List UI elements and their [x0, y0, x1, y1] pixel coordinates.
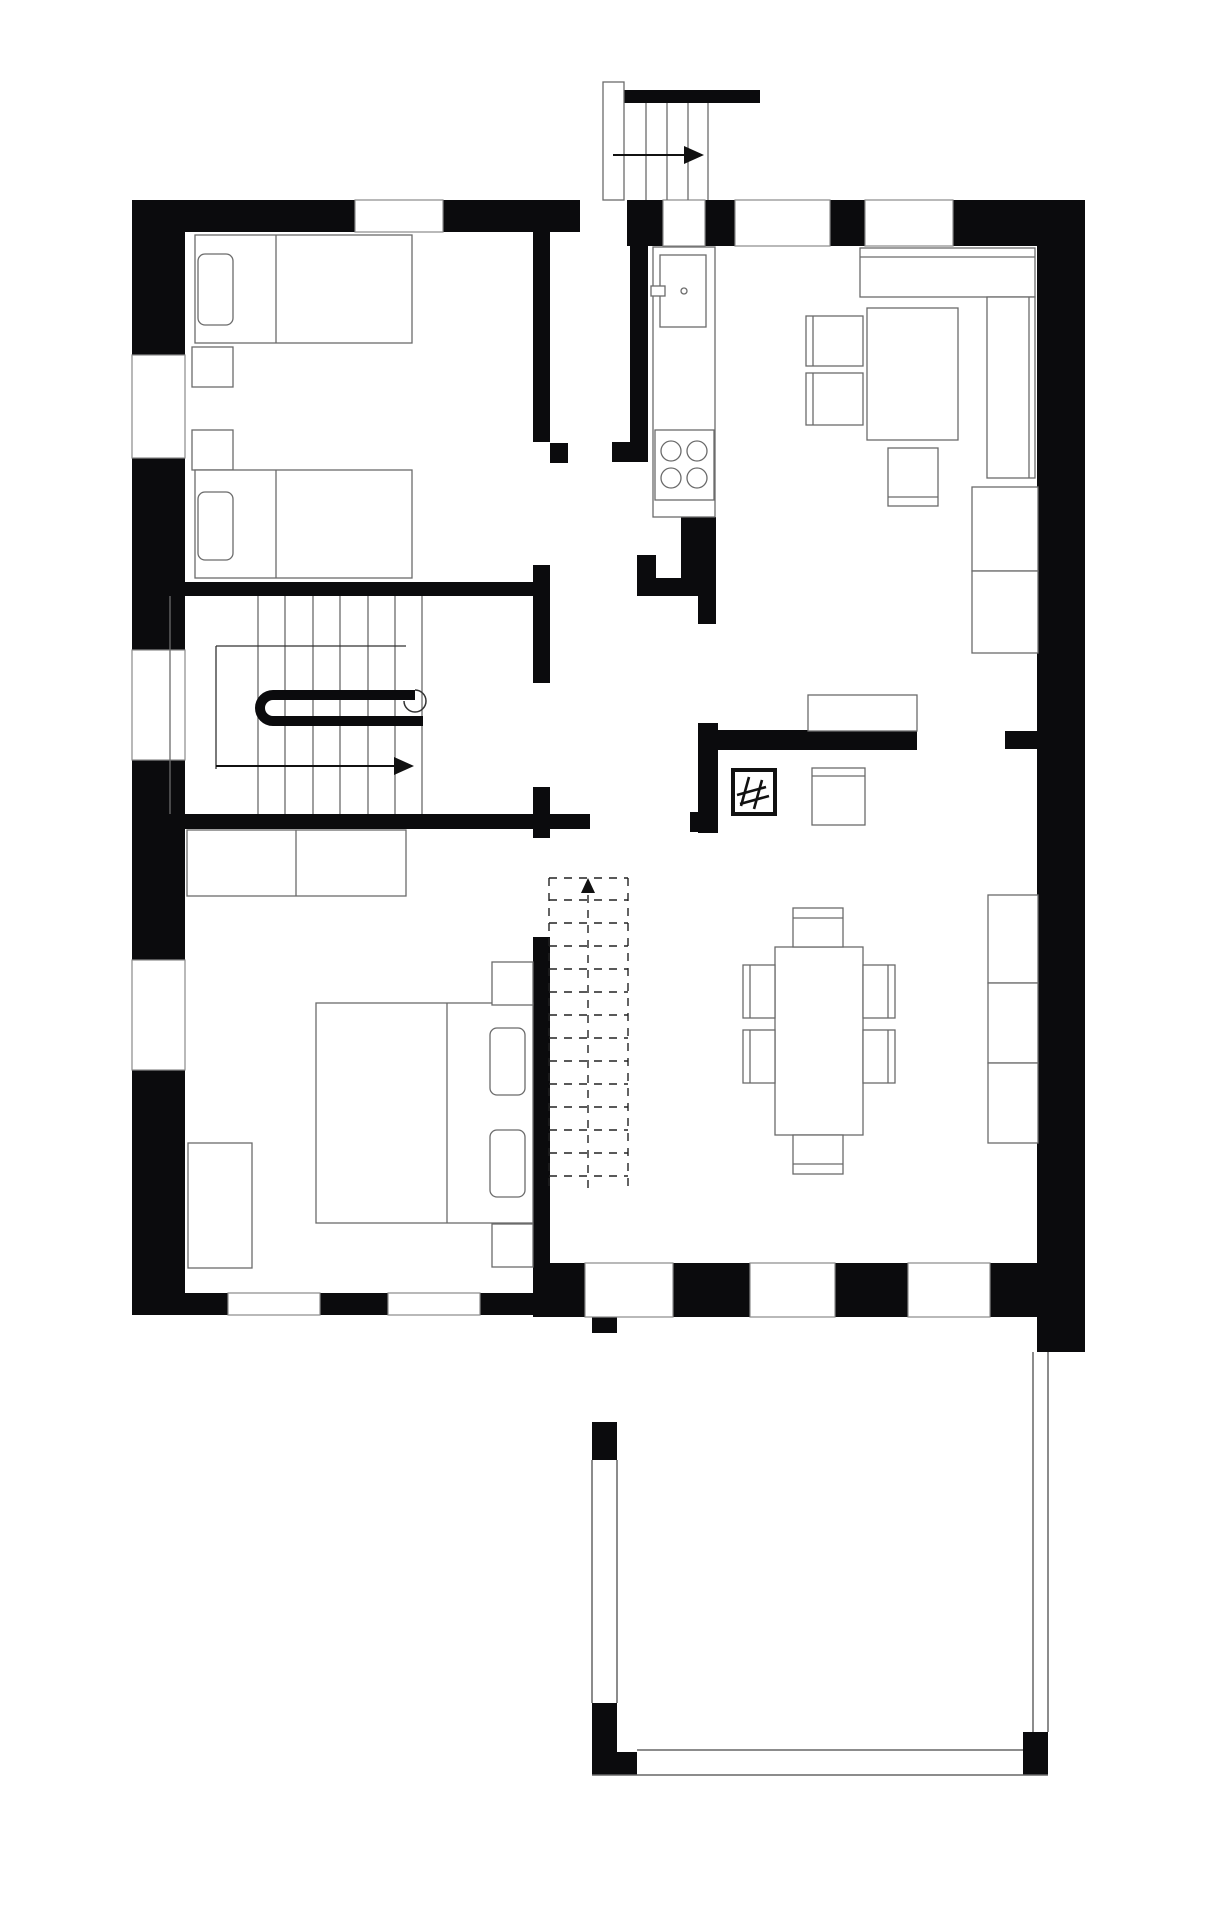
dining-chair-west-2: [743, 1030, 775, 1083]
kitchen-faucet: [651, 286, 665, 296]
terrace-stub-top: [592, 1317, 617, 1333]
hall-wall-left-stub: [550, 443, 568, 463]
southwest-junction: [533, 1266, 585, 1317]
hall-wall-cross: [533, 787, 550, 838]
window-top-4: [865, 200, 953, 246]
cabinet-3: [988, 895, 1038, 983]
hall-wall-right: [630, 232, 648, 442]
kitchen-wall-piece: [637, 555, 656, 578]
core-wall-foot: [690, 812, 718, 832]
burner-3: [661, 468, 681, 488]
dining-chair-south: [793, 1135, 843, 1174]
nightstand-2: [192, 430, 233, 470]
sink-drain: [681, 288, 687, 294]
left-wall-3: [132, 760, 185, 960]
window-bottom-left-2: [388, 1293, 480, 1315]
dining-chair-north: [793, 908, 843, 947]
cabinet-5: [988, 1063, 1038, 1143]
right-wall: [1037, 246, 1085, 1352]
entry-canopy-bar: [620, 90, 760, 103]
terrace-pier-right: [1023, 1732, 1048, 1775]
nightstand-3: [492, 962, 533, 1005]
floor-plan-page: [0, 0, 1222, 1920]
floor-plan: [0, 0, 1222, 1920]
top-wall-2: [443, 200, 580, 232]
armchair-2: [806, 373, 863, 425]
bottom-left-wall-1: [132, 1293, 228, 1315]
upper-stair-arrow-head: [581, 878, 595, 893]
bottom-right-wall-2: [673, 1263, 750, 1317]
terrace-pier-left: [592, 1422, 617, 1460]
left-wall-1: [132, 200, 185, 355]
top-wall-5: [830, 200, 865, 246]
window-left-2: [132, 650, 185, 760]
left-wall-4: [132, 1070, 185, 1315]
bed-single-1-pillow: [198, 254, 233, 325]
bed-double-pillow-2: [490, 1130, 525, 1197]
top-wall-6: [953, 200, 1085, 246]
window-left-3: [132, 960, 185, 1070]
entry-stair-sidewall: [603, 82, 624, 200]
cabinet-2: [972, 571, 1038, 653]
dining-table: [775, 947, 863, 1135]
sofa-top-section: [860, 248, 1035, 297]
core-wall-east-stub: [1005, 731, 1037, 749]
hall-wall-left-mid: [533, 565, 550, 683]
cabinet-1: [972, 487, 1038, 571]
window-bottom-right-1: [585, 1263, 673, 1317]
burner-2: [687, 441, 707, 461]
armchair-1: [806, 316, 863, 366]
hall-wall-left-upper: [533, 232, 550, 442]
nightstand-4: [492, 1224, 533, 1267]
nightstand-1: [192, 347, 233, 387]
left-wall-2: [132, 458, 185, 650]
dining-chair-east-2: [863, 1030, 895, 1083]
bed-single-2-pillow: [198, 492, 233, 560]
window-left-1: [132, 355, 185, 458]
bedroom1-south-wall: [170, 582, 533, 596]
window-top-2: [663, 200, 705, 246]
bed-double-pillow-1: [490, 1028, 525, 1095]
kitchen-chimney: [681, 517, 716, 578]
core-wall-bar: [713, 730, 917, 750]
window-bottom-left-1: [228, 1293, 320, 1315]
hall-wall-right-cap: [612, 442, 648, 462]
window-top-3: [735, 200, 830, 246]
sofa-right-section: [987, 297, 1035, 478]
top-wall-4: [705, 200, 735, 246]
kitchen-south-bar: [637, 578, 716, 596]
hall-wall-left-lower: [533, 937, 550, 1266]
dining-chair-east-1: [863, 965, 895, 1018]
stairwell-south-wall: [143, 814, 590, 829]
bottom-right-wall-3: [835, 1263, 908, 1317]
kitchen-stove: [655, 430, 714, 500]
bottom-left-wall-2: [320, 1293, 388, 1315]
dining-chair-west-1: [743, 965, 775, 1018]
window-top-1: [355, 200, 443, 232]
terrace-corner-left-h: [592, 1752, 637, 1775]
coffee-table: [867, 308, 958, 440]
window-bottom-right-3: [908, 1263, 990, 1317]
kitchen-south-descender: [698, 596, 716, 624]
burner-1: [661, 441, 681, 461]
burner-4: [687, 468, 707, 488]
dresser: [188, 1143, 252, 1268]
entry-arrow-head: [684, 146, 704, 164]
cabinet-4: [988, 983, 1038, 1063]
stairwell-arrow-head: [394, 757, 414, 775]
bottom-right-wall-4: [990, 1263, 1085, 1317]
sideboard: [808, 695, 917, 731]
window-bottom-right-2: [750, 1263, 835, 1317]
